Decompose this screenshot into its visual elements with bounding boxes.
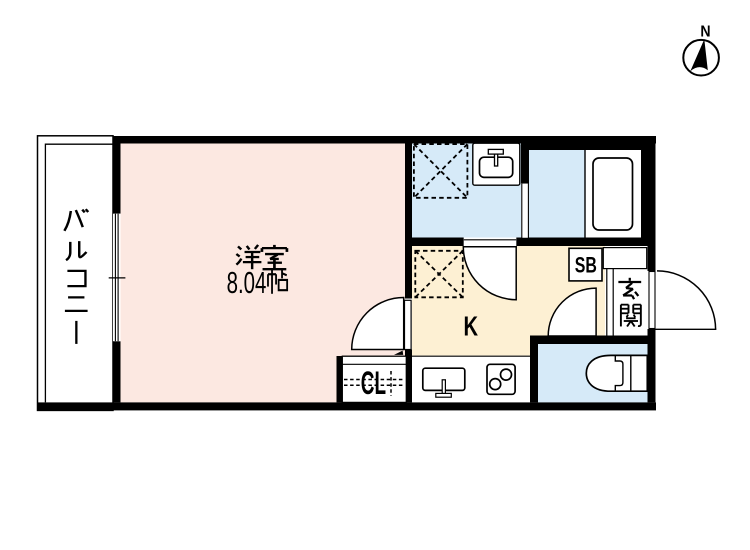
svg-text:K: K (464, 311, 479, 342)
svg-text:N: N (700, 23, 710, 41)
svg-text:8.04: 8.04 (227, 267, 267, 300)
svg-text:CL: CL (361, 365, 386, 402)
svg-text:SB: SB (575, 253, 597, 278)
